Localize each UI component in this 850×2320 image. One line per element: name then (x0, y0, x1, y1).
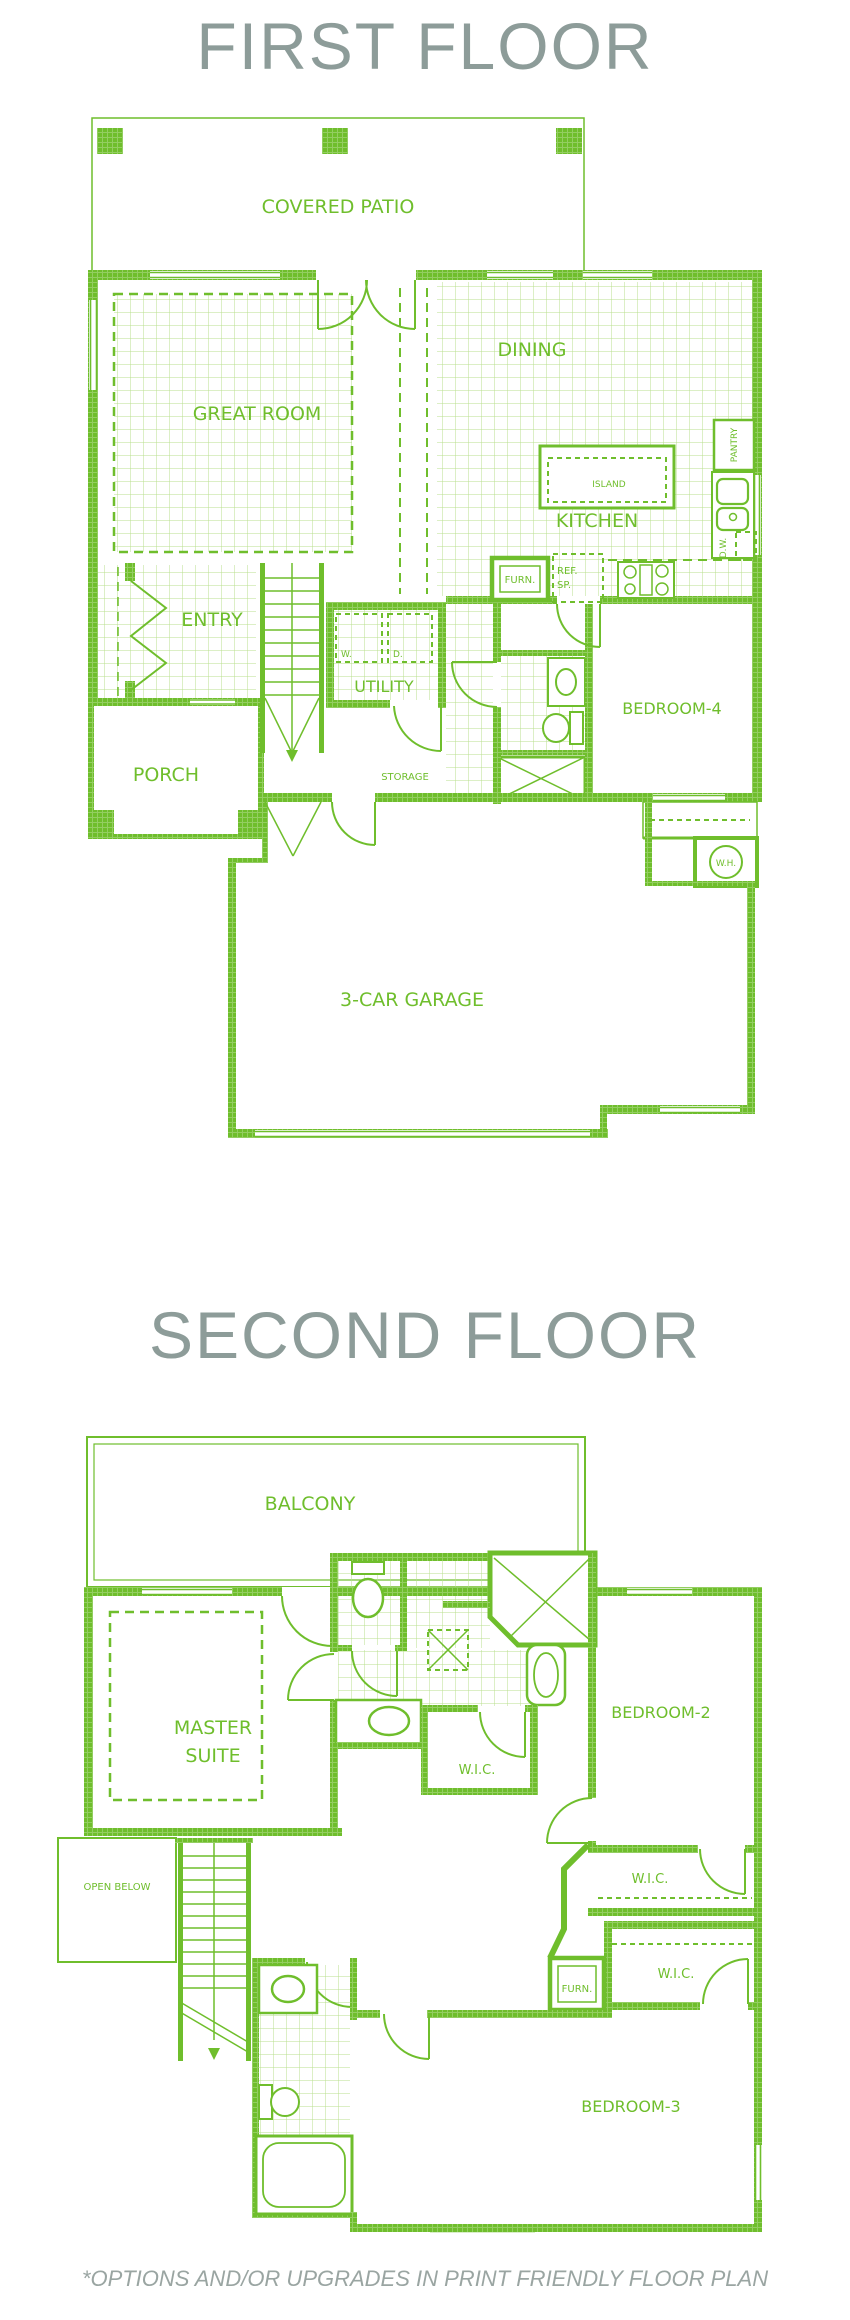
bedroom-4-label: BEDROOM-4 (622, 699, 721, 718)
master-bath-tile2 (338, 1650, 530, 1706)
furnace-closet: FURN. (492, 558, 548, 600)
wic-bedroom2-label: W.I.C. (632, 1872, 669, 1887)
storage-label: STORAGE (381, 772, 429, 783)
bath2-tub (256, 2136, 352, 2214)
covered-patio-label: COVERED PATIO (262, 196, 415, 218)
room-wic-bedroom3: W.I.C. FURN. (550, 1845, 762, 2010)
floor-plan-drawing: COVERED PATIO (0, 0, 850, 2320)
utility-label: UTILITY (354, 677, 414, 696)
second-floor-plan: BALCONY (58, 1437, 762, 2232)
master-sink (369, 1707, 409, 1735)
washer-label: W. (341, 650, 352, 660)
dining-label: DINING (498, 339, 567, 361)
toilet-bowl (543, 714, 569, 742)
master-suite-label-line1: MASTER (174, 1717, 252, 1739)
balcony-label: BALCONY (265, 1493, 356, 1515)
room-garage: 3-CAR GARAGE (228, 793, 755, 1138)
furnace-2-label: FURN. (562, 1984, 593, 1995)
furnace-closet-2: FURN. (550, 1958, 604, 2010)
furnace-label: FURN. (505, 575, 536, 586)
toilet-tank (352, 1562, 384, 1574)
wic-bedroom3-label: W.I.C. (658, 1967, 695, 1982)
stair-direction-arrow (208, 2048, 220, 2060)
water-heater-closet: W.H. (643, 802, 757, 886)
stairs-second-floor (175, 1838, 253, 2061)
toilet-bowl (353, 1579, 383, 1617)
kitchen-island (540, 446, 674, 508)
wic-master-label: W.I.C. (459, 1763, 496, 1778)
pantry-label: PANTRY (730, 427, 740, 462)
hall-tile (446, 604, 493, 800)
room-porch: PORCH (88, 705, 264, 839)
patio-pillar (322, 128, 348, 154)
porch-label: PORCH (133, 764, 199, 786)
toilet-tank (570, 712, 583, 744)
kitchen-label: KITCHEN (556, 510, 638, 532)
room-open-below: OPEN BELOW (58, 1838, 176, 1962)
patio-pillar (556, 128, 582, 154)
porch-pillar (238, 810, 264, 836)
garage-label: 3-CAR GARAGE (340, 989, 484, 1011)
bath-sink (556, 669, 576, 695)
dryer-label: D. (393, 650, 403, 660)
water-heater-label: W.H. (716, 859, 736, 869)
room-bedroom-3: BEDROOM-3 (350, 2010, 762, 2232)
room-covered-patio: COVERED PATIO (92, 118, 584, 274)
great-room-label: GREAT ROOM (193, 403, 322, 425)
porch-pillar (88, 810, 114, 836)
ref-label-line1: REF. (557, 566, 578, 577)
room-wic-master: W.I.C. (421, 1705, 538, 1795)
entry-tile (98, 565, 256, 698)
dishwasher-label: D.W. (719, 538, 729, 559)
stair-direction-arrow (286, 750, 298, 762)
stairs-first-floor (260, 563, 324, 762)
toilet-bowl (271, 2088, 299, 2116)
bedroom-2-label: BEDROOM-2 (611, 1703, 710, 1722)
bath2-sink (272, 1976, 304, 2002)
first-floor-plan: COVERED PATIO (88, 118, 762, 1138)
hall-wall (550, 1845, 588, 1958)
ref-label-line2: SP. (557, 580, 571, 591)
bedroom-3-label: BEDROOM-3 (581, 2097, 680, 2116)
island-label: ISLAND (592, 480, 625, 490)
room-master-suite: MASTER SUITE (110, 1596, 338, 1836)
cooktop (618, 562, 674, 598)
entry-label: ENTRY (181, 609, 243, 631)
sink-basin (717, 479, 748, 504)
kitchen-dining-tile (437, 282, 752, 596)
patio-pillar (97, 128, 123, 154)
floor-plan-page: FIRST FLOOR SECOND FLOOR *OPTIONS AND/OR… (0, 0, 850, 2320)
open-below-label: OPEN BELOW (83, 1882, 150, 1893)
master-suite-label-line2: SUITE (185, 1745, 240, 1767)
